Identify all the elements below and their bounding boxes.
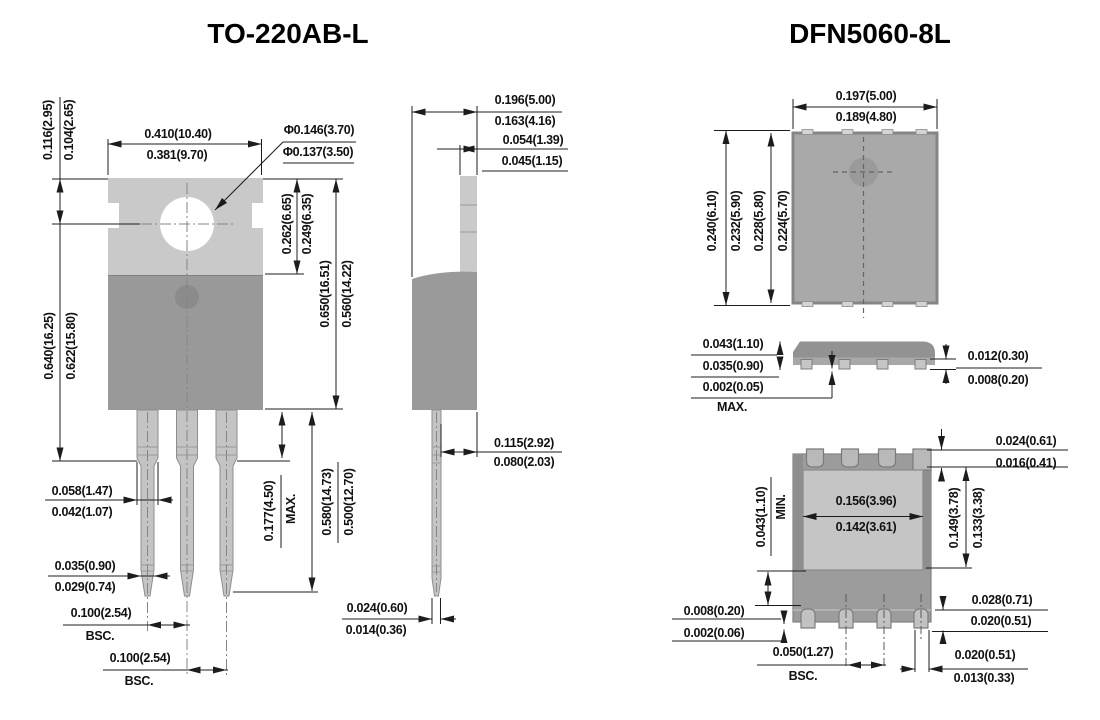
to220-tab-notch-right — [252, 203, 263, 228]
dim-dfn-length2: 0.232(5.90) — [729, 191, 743, 252]
dim-dfn-length4: 0.224(5.70) — [776, 191, 790, 252]
dim-dfn-width-min: 0.189(4.80) — [836, 110, 897, 124]
dim-to220-pitch2: 0.100(2.54) — [110, 651, 171, 665]
dim-dfn-lead-len-min: 0.020(0.51) — [971, 614, 1032, 628]
dim-dfn-height-min: 0.035(0.90) — [703, 359, 764, 373]
to220-side-body — [412, 272, 477, 410]
dfn-bottom-view — [793, 449, 931, 668]
dim-dfn-pad-height-max: 0.149(3.78) — [947, 488, 961, 549]
dim-to220-lead-thickness-min: 0.014(0.36) — [346, 623, 407, 637]
dim-dfn-pitch-suffix: BSC. — [789, 669, 818, 683]
dim-dfn-length1: 0.240(6.10) — [705, 191, 719, 252]
dim-to220-body-height-min: 0.560(14.22) — [340, 260, 354, 327]
dim-to220-shoulder-len: 0.177(4.50) — [262, 481, 276, 542]
dfn-side-view — [793, 342, 935, 370]
diagram-canvas — [0, 0, 1100, 720]
dim-to220-depth-max: 0.196(5.00) — [495, 93, 556, 107]
dim-dfn-pad-width-min: 0.142(3.61) — [836, 520, 897, 534]
dim-dfn-lead-thickness-max: 0.012(0.30) — [968, 349, 1029, 363]
dim-to220-lead-width-max: 0.058(1.47) — [52, 484, 113, 498]
dim-dfn-height-max: 0.043(1.10) — [703, 337, 764, 351]
dim-dfn-pitch: 0.050(1.27) — [773, 645, 834, 659]
dim-to220-lead-tip-width-min: 0.029(0.74) — [55, 580, 116, 594]
dim-to220-pitch2-suffix: BSC. — [125, 674, 154, 688]
dim-to220-hole-offset-max: 0.116(2.95) — [41, 100, 55, 160]
dim-dfn-pad-height-min: 0.133(3.38) — [971, 488, 985, 549]
dim-to220-tab-width-min: 0.381(9.70) — [147, 148, 208, 162]
dim-dfn-standoff: 0.002(0.05) — [703, 380, 764, 394]
dim-to220-lead-width-min: 0.042(1.07) — [52, 505, 113, 519]
dim-dfn-lead-protrusion-min: 0.002(0.06) — [684, 626, 745, 640]
dim-dfn-pad-width-max: 0.156(3.96) — [836, 494, 897, 508]
title-to220: TO-220AB-L — [207, 18, 368, 50]
dim-to220-lead-tip-width-max: 0.035(0.90) — [55, 559, 116, 573]
dim-to220-hole-dia-min: Φ0.137(3.50) — [283, 145, 354, 159]
dim-to220-pitch1-suffix: BSC. — [86, 629, 115, 643]
dim-to220-pitch1: 0.100(2.54) — [71, 606, 132, 620]
dfn-top-view — [793, 130, 937, 319]
dim-dfn-width-max: 0.197(5.00) — [836, 89, 897, 103]
to220-side-tab — [460, 176, 477, 274]
dim-dfn-lead-protrusion-max: 0.008(0.20) — [684, 604, 745, 618]
dim-to220-lead-thickness-max: 0.024(0.60) — [347, 601, 408, 615]
dim-to220-lead-offset-min: 0.080(2.03) — [494, 455, 555, 469]
dim-dfn-corner-pad-min: 0.016(0.41) — [996, 456, 1057, 470]
to220-side-view — [412, 176, 477, 596]
dim-dfn-lead-thickness-min: 0.008(0.20) — [968, 373, 1029, 387]
dim-to220-tab-thickness-max: 0.054(1.39) — [503, 133, 564, 147]
dim-to220-tab-height-min: 0.249(6.35) — [300, 194, 314, 255]
dim-dfn-corner-pad-max: 0.024(0.61) — [996, 434, 1057, 448]
dim-to220-lead-len-max: 0.580(14.73) — [320, 468, 334, 535]
dim-to220-depth-min: 0.163(4.16) — [495, 114, 556, 128]
dim-to220-hole-dia-max: Φ0.146(3.70) — [284, 123, 355, 137]
title-dfn: DFN5060-8L — [789, 18, 951, 50]
dim-dfn-lead-width-max: 0.020(0.51) — [955, 648, 1016, 662]
dim-dfn-standoff-suffix: MAX. — [717, 400, 747, 414]
dim-to220-tab-height-max: 0.262(6.65) — [280, 194, 294, 255]
dim-to220-length-max: 0.640(16.25) — [42, 312, 56, 379]
package-outline-drawing: TO-220AB-L DFN5060-8L 0.410(10.40) 0.381… — [0, 0, 1100, 720]
dim-to220-tab-width-max: 0.410(10.40) — [144, 127, 211, 141]
dim-to220-shoulder-suffix: MAX. — [284, 494, 298, 524]
dim-dfn-lead-len-max: 0.028(0.71) — [972, 593, 1033, 607]
dim-to220-lead-offset-max: 0.115(2.92) — [494, 436, 554, 450]
dim-dfn-pad-clearance: 0.043(1.10) — [754, 487, 768, 548]
dim-to220-body-height-max: 0.650(16.51) — [318, 260, 332, 327]
dim-dfn-length3: 0.228(5.80) — [752, 191, 766, 252]
dim-to220-length-min: 0.622(15.80) — [64, 312, 78, 379]
dim-to220-hole-offset-min: 0.104(2.65) — [62, 100, 76, 161]
dim-dfn-lead-width-min: 0.013(0.33) — [954, 671, 1015, 685]
to220-front-view — [108, 178, 263, 676]
dim-to220-lead-len-min: 0.500(12.70) — [342, 468, 356, 535]
dim-to220-tab-thickness-min: 0.045(1.15) — [502, 154, 563, 168]
dim-dfn-pad-clearance-suffix: MIN. — [774, 494, 788, 519]
